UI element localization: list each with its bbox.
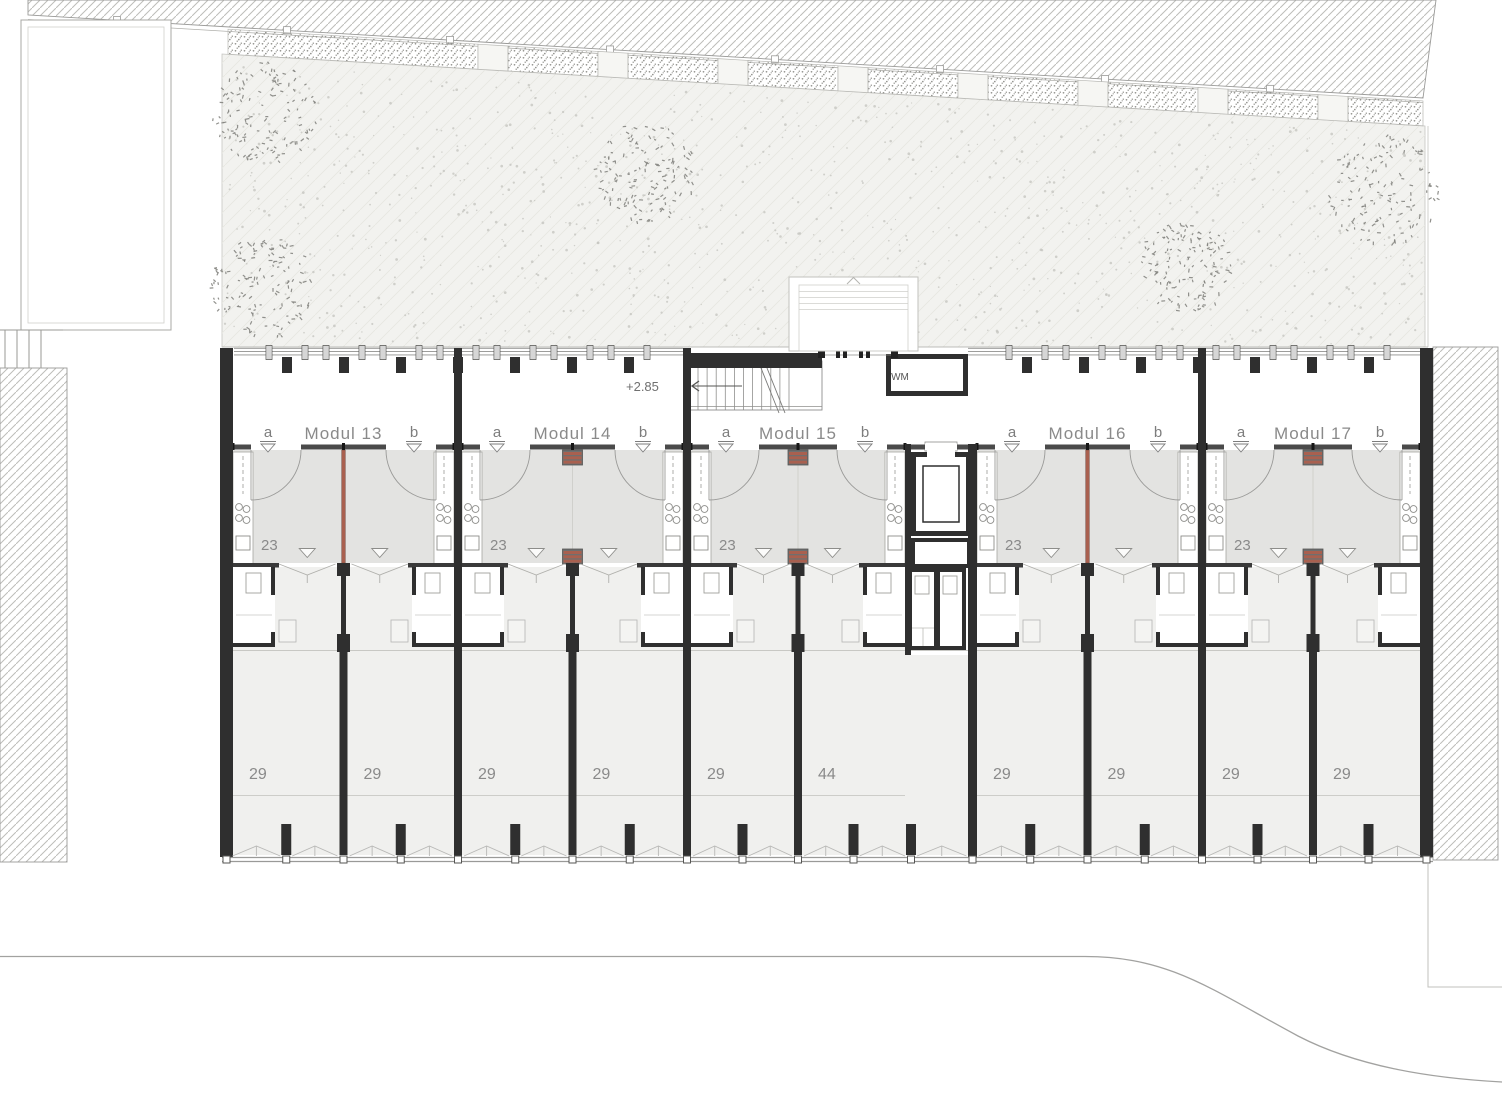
road-edge [0, 957, 1502, 1083]
paver-cell [1318, 95, 1348, 122]
facade-post-icon [223, 856, 230, 863]
side-table [508, 620, 525, 642]
window-mullion-icon [587, 346, 593, 360]
property-line [1428, 864, 1502, 987]
window-mullion-icon [1120, 346, 1126, 360]
section-marker-a: a [722, 424, 731, 441]
washbasin-icon [654, 573, 669, 593]
washbasin-icon [1169, 573, 1184, 593]
module-modul-14: Modul 14ab232929 [461, 424, 685, 855]
facade-post-icon [1199, 856, 1206, 863]
window-mullion-icon [1234, 346, 1240, 360]
section-marker-a: a [1008, 424, 1017, 441]
window-mullion-icon [1270, 346, 1276, 360]
sink-icon [1209, 536, 1223, 550]
room-area-label: 23 [1234, 537, 1251, 554]
module-divider-wall [342, 450, 346, 563]
facade-post-icon [397, 856, 404, 863]
unit-area-label: 29 [993, 766, 1011, 783]
module-divider-wall [1086, 450, 1090, 563]
window-mullion-icon [1348, 346, 1354, 360]
module-name-label: Modul 16 [1049, 424, 1127, 443]
building: Modul 13ab232929Modul 14ab232929Modul 15… [220, 277, 1433, 863]
window-mullion-icon [302, 346, 308, 360]
unit-area-label: 29 [478, 766, 496, 783]
window-mullion-icon [437, 346, 443, 360]
unit-area-label: 29 [1333, 766, 1351, 783]
section-marker-b: b [861, 424, 869, 441]
facade-post-icon [512, 856, 519, 863]
unit-area-label: 29 [364, 766, 382, 783]
section-marker-b: b [410, 424, 418, 441]
unit-area-label: 29 [593, 766, 611, 783]
paver-cell [478, 44, 508, 71]
window-mullion-icon [530, 346, 536, 360]
window-mullion-icon [1006, 346, 1012, 360]
window-mullion-icon [551, 346, 557, 360]
window-mullion-icon [1213, 346, 1219, 360]
facade-post-icon [684, 856, 691, 863]
stair-up-icon [563, 549, 583, 564]
stair-up-icon [563, 450, 583, 465]
facade-post-icon [1141, 856, 1148, 863]
window-mullion-icon [1384, 346, 1390, 360]
sink-icon [980, 536, 994, 550]
paver-cell [1078, 80, 1108, 107]
washbasin-icon [246, 573, 261, 593]
stair-up-icon [1303, 549, 1323, 564]
facade-fin [510, 824, 520, 855]
facade-post-icon [795, 856, 802, 863]
facade-post-icon [1084, 856, 1091, 863]
module-modul-16: Modul 16ab232929 [976, 424, 1200, 855]
window-mullion-icon [1156, 346, 1162, 360]
facade-fin [1140, 824, 1150, 855]
facade-pier [396, 357, 406, 373]
unit-area-label: 29 [1222, 766, 1240, 783]
facade-pier [624, 357, 634, 373]
washbasin-icon [1219, 573, 1234, 593]
facade-pier [1079, 357, 1089, 373]
sink-icon [1403, 536, 1417, 550]
facade-fin [1253, 824, 1263, 855]
sink-icon [236, 536, 250, 550]
facade-post-icon [626, 856, 633, 863]
window-mullion-icon [380, 346, 386, 360]
paver-cell [958, 73, 988, 100]
facade-post-icon [739, 856, 746, 863]
facade-pier [567, 357, 577, 373]
module-modul-13: Modul 13ab232929 [232, 424, 456, 855]
section-marker-b: b [1376, 424, 1384, 441]
side-table [737, 620, 754, 642]
window-mullion-icon [1042, 346, 1048, 360]
window-mullion-icon [608, 346, 614, 360]
window-mullion-icon [359, 346, 365, 360]
side-table [279, 620, 296, 642]
hedge-cell [748, 60, 838, 90]
facade-pier [1364, 357, 1374, 373]
facade-fin [738, 824, 748, 855]
hedge-cell [1348, 96, 1423, 126]
facade-post-icon [850, 856, 857, 863]
facade-fin [1025, 824, 1035, 855]
window-mullion-icon [323, 346, 329, 360]
facade-post-icon [1423, 856, 1430, 863]
facade-post-icon [283, 856, 290, 863]
module-name-label: Modul 15 [759, 424, 837, 443]
module-modul-17: Modul 17ab232929 [1205, 424, 1422, 855]
section-marker-a: a [493, 424, 502, 441]
stair-up-icon [1303, 450, 1323, 465]
facade-pier [282, 357, 292, 373]
window-mullion-icon [494, 346, 500, 360]
room-area-label: 23 [261, 537, 278, 554]
party-wall [683, 348, 691, 857]
facade-post-icon [908, 856, 915, 863]
sink-icon [694, 536, 708, 550]
window-mullion-icon [1327, 346, 1333, 360]
side-table [1252, 620, 1269, 642]
stair-up-icon [788, 549, 808, 564]
room-area-label: 23 [490, 537, 507, 554]
facade-post-icon [1027, 856, 1034, 863]
wm-label: WM [891, 372, 909, 383]
unit-area-label: 29 [249, 766, 267, 783]
elevator [911, 442, 971, 536]
facade-post-icon [340, 856, 347, 863]
window-mullion-icon [1291, 346, 1297, 360]
side-table [620, 620, 637, 642]
facade-pier [1250, 357, 1260, 373]
level-label: +2.85 [626, 379, 659, 394]
facade-post-icon [1254, 856, 1261, 863]
hedge-cell [988, 75, 1078, 105]
facade-post-icon [969, 856, 976, 863]
sink-icon [1181, 536, 1195, 550]
sink-icon [666, 536, 680, 550]
elevator-car-icon [923, 466, 959, 522]
module-name-label: Modul 13 [305, 424, 383, 443]
facade-fin [625, 824, 635, 855]
floor-plan-page: Modul 13ab232929Modul 14ab232929Modul 15… [0, 0, 1502, 1094]
facade-pier [1022, 357, 1032, 373]
west-neighbor-building [0, 20, 171, 330]
side-table [1135, 620, 1152, 642]
facade-fin [396, 824, 406, 855]
stair-up-icon [788, 450, 808, 465]
facade-post-icon [455, 856, 462, 863]
window-mullion-icon [1063, 346, 1069, 360]
facade-pier [1307, 357, 1317, 373]
party-wall [454, 348, 462, 857]
facade-fin [281, 824, 291, 855]
unit-area-label: 29 [1108, 766, 1126, 783]
floor-plan-drawing: Modul 13ab232929Modul 14ab232929Modul 15… [0, 0, 1502, 1094]
window-mullion-icon [473, 346, 479, 360]
section-marker-b: b [1154, 424, 1162, 441]
hedge-cell [1108, 82, 1198, 112]
hedge-cell [628, 53, 718, 83]
module-name-label: Modul 17 [1274, 424, 1352, 443]
facade-post-icon [1310, 856, 1317, 863]
facade-pier [1136, 357, 1146, 373]
washbasin-icon [1391, 573, 1406, 593]
sink-icon [465, 536, 479, 550]
wm-room: WM [886, 354, 968, 396]
west-neighbor-block [0, 368, 67, 862]
east-neighbor-block [1433, 347, 1498, 860]
room-area-label: 23 [719, 537, 736, 554]
hedge-cell [508, 46, 598, 76]
window-mullion-icon [416, 346, 422, 360]
sink-icon [888, 536, 902, 550]
hedge-cell [1228, 89, 1318, 119]
window-mullion-icon [644, 346, 650, 360]
side-table [842, 620, 859, 642]
facade-fin [849, 824, 859, 855]
entrance-canopy [789, 277, 918, 351]
section-marker-a: a [264, 424, 273, 441]
paver-cell [838, 66, 868, 93]
washbasin-icon [704, 573, 719, 593]
facade-pier [510, 357, 520, 373]
section-marker-a: a [1237, 424, 1246, 441]
washbasin-icon [475, 573, 490, 593]
washbasin-icon [876, 573, 891, 593]
paver-cell [1198, 87, 1228, 114]
window-mullion-icon [1099, 346, 1105, 360]
party-wall [1198, 348, 1206, 857]
party-wall [1420, 348, 1433, 857]
side-table [391, 620, 408, 642]
facade-post-icon [1365, 856, 1372, 863]
washbasin-icon [990, 573, 1005, 593]
paver-cell [598, 51, 628, 78]
washbasin-icon [425, 573, 440, 593]
party-wall [220, 348, 233, 857]
hedge-cell [868, 68, 958, 98]
sink-icon [437, 536, 451, 550]
window-mullion-icon [1177, 346, 1183, 360]
facade-fin [1364, 824, 1374, 855]
section-marker-b: b [639, 424, 647, 441]
room-area-label: 23 [1005, 537, 1022, 554]
west-fence [5, 330, 41, 368]
facade-pier [339, 357, 349, 373]
paver-cell [718, 59, 748, 86]
module-name-label: Modul 14 [534, 424, 612, 443]
facade-fin [906, 824, 916, 855]
unit-area-label: 29 [707, 766, 725, 783]
side-table [1357, 620, 1374, 642]
unit-area-label: 44 [818, 766, 836, 783]
facade-post-icon [569, 856, 576, 863]
window-mullion-icon [266, 346, 272, 360]
side-table [1023, 620, 1040, 642]
